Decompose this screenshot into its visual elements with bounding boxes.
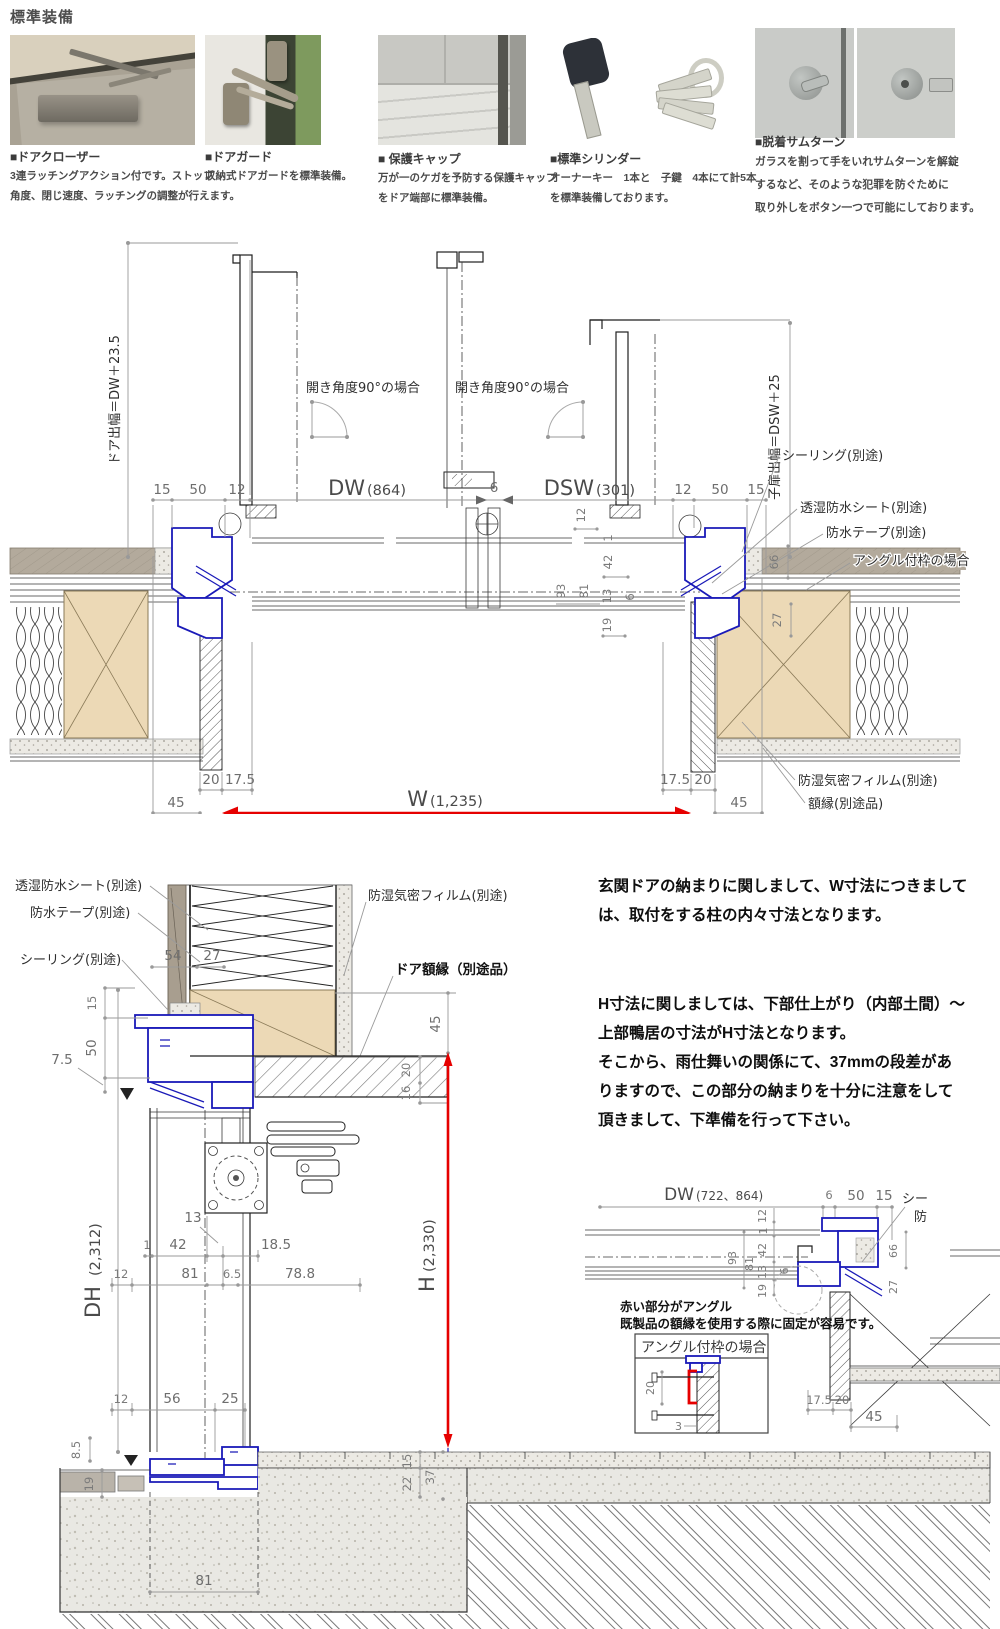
detail-note-1: 赤い部分がアングル (620, 1299, 733, 1314)
h-dimension-note: H寸法に関しましては、下部仕上がり（内部土間）～ 上部鴨居の寸法がH寸法となりま… (598, 990, 978, 1135)
thumbturn-photo-right (857, 28, 955, 138)
dim-175-right: 17.5 (660, 772, 690, 788)
swing-symbol-left (310, 400, 349, 439)
dim-6-5: 6.5 (223, 1267, 241, 1281)
dim-8-5: 8.5 (69, 1441, 83, 1459)
dim-6b: 6 (623, 593, 637, 600)
handle-bar (267, 1122, 345, 1131)
caption-door-closer-l2: 角度、閉じ速度、ラッチングの調整が行えます。 (10, 188, 240, 203)
dim-66: 66 (767, 555, 781, 570)
dim-45-right: 45 (730, 795, 747, 811)
sealing-label: シーリング(別途) (782, 448, 883, 464)
moisture-sheet-label: 透湿防水シート(別途) (15, 878, 142, 894)
dim-20-right: 20 (694, 772, 711, 788)
section-title: 標準装備 (10, 6, 74, 27)
caption-door-guard: ■ドアガード (205, 148, 272, 165)
caption-protection-cap-l2: をドア端部に標準装備。 (378, 190, 494, 205)
box-dim-3: 3 (675, 1420, 682, 1433)
closer-body (38, 95, 138, 122)
dim-6: 6 (490, 480, 499, 496)
dim-12-low: 12 (114, 1392, 129, 1406)
w-value: (1,235) (430, 794, 483, 810)
dim-45-left: 45 (167, 795, 184, 811)
w-dimension-note: 玄関ドアの納まりに関しまして、W寸法につきまして は、取付をする柱の内々寸法とな… (598, 872, 978, 930)
dim-7-5: 7.5 (51, 1052, 72, 1068)
door-catalog-page: 標準装備 (0, 0, 1000, 1629)
caption-cylinder: ■標準シリンダー (550, 150, 641, 167)
note-p1-l2: は、取付をする柱の内々寸法となります。 (598, 901, 978, 930)
dim-12-right: 12 (674, 482, 691, 498)
dim-27: 27 (203, 948, 220, 964)
swing-label-right: 開き角度90°の場合 (455, 380, 569, 396)
protection-cap-photo (378, 35, 526, 145)
thumbturn-photo-left (755, 28, 854, 138)
plan-left-jamb-frame (172, 528, 236, 638)
swing-symbol-right (546, 400, 585, 439)
detail-dim-15: 15 (875, 1188, 892, 1204)
vsec-left-dimensions: 15 50 7.5 DH (2,312) (51, 986, 150, 1454)
vsec-lock-assembly (205, 1118, 359, 1213)
ddim-13: 13 (756, 1265, 769, 1279)
plan-section-drawing: 開き角度90°の場合 開き角度90°の場合 15 50 12 DW (864) … (0, 222, 1000, 814)
detail-note-2: 既製品の額縁を使用する際に固定が容易です。 (620, 1316, 881, 1331)
dim-15-floor: 15 (400, 1454, 414, 1469)
dim-45: 45 (428, 1015, 444, 1032)
dim-12-left: 12 (228, 482, 245, 498)
dim-22: 22 (400, 1477, 414, 1492)
ddim-1: 1 (757, 1228, 770, 1235)
note-p2-l3: そこから、雨仕舞いの関係にて、37mmの段差があ (598, 1048, 978, 1077)
caption-protection-cap: ■ 保護キャップ (378, 150, 461, 167)
child-projection-dim: 子扉出幅＝DSW＋25 (767, 321, 792, 559)
door-closer-photo (10, 35, 195, 145)
plan-open-child-leaf (590, 320, 790, 505)
dim-12: 12 (574, 508, 588, 523)
ddim-12: 12 (756, 1209, 769, 1223)
dim-19: 19 (600, 618, 614, 633)
frame-trim-label: 額縁(別途品) (808, 796, 883, 812)
dh-label: DH (81, 1286, 105, 1318)
detail-dim-6: 6 (825, 1188, 832, 1202)
insulation-batt (852, 607, 912, 735)
hinge-left (219, 513, 241, 535)
dsw-label: DSW (544, 476, 595, 500)
backer-rod (155, 548, 172, 574)
dim-42: 42 (169, 1237, 186, 1253)
detail-dim-50: 50 (847, 1188, 864, 1204)
note-p2-l4: りますので、この部分の納まりを十分に注意をして (598, 1077, 978, 1106)
detail-dw-label: DW (664, 1185, 694, 1205)
truncated-sealing-label: シー (902, 1192, 928, 1207)
dim-15-left: 15 (153, 482, 170, 498)
note-p2-l1: H寸法に関しましては、下部仕上がり（内部土間）～ (598, 990, 978, 1019)
detail-dim-45: 45 (865, 1409, 882, 1425)
angle-frame-case-box: アングル付枠の場合 20 3 (635, 1334, 768, 1433)
sealing-label: シーリング(別途) (20, 952, 121, 968)
ddim-93: 93 (726, 1251, 739, 1265)
dim-19: 19 (82, 1477, 96, 1492)
door-edge (498, 35, 508, 145)
ddim-81: 81 (743, 1257, 756, 1271)
door-guard-photo (205, 35, 321, 145)
dim-25: 25 (221, 1391, 238, 1407)
dim-50-right: 50 (711, 482, 728, 498)
caption-door-closer-l1: 3連ラッチングアクション付です。ストップ (10, 168, 214, 183)
door-jamb-line (841, 28, 846, 138)
caption-cylinder-l2: を標準装備しております。 (550, 190, 674, 205)
waterproof-tape-label: 防水テープ(別途) (30, 905, 130, 921)
detail-post-and-floor (830, 1292, 1000, 1426)
dw-value: (864) (367, 483, 406, 499)
dim-13: 13 (184, 1210, 201, 1226)
moisture-film-label: 防湿気密フィルム(別途) (798, 773, 938, 789)
thumbturn-hole (901, 80, 909, 88)
interior-lintel (255, 1057, 447, 1097)
dim-12-mid: 12 (114, 1267, 129, 1281)
dim-1: 1 (601, 534, 615, 541)
caption-thumbturn: ■脱着サムターン (755, 133, 845, 150)
dim-20-left: 20 (202, 772, 219, 788)
dim-56: 56 (163, 1391, 180, 1407)
cylinder-keys-photo (548, 38, 738, 146)
w-label: W (407, 787, 428, 811)
dim-50-left: 50 (189, 482, 206, 498)
dw-label: DW (328, 476, 365, 500)
dim-54: 54 (164, 948, 181, 964)
h-label: H (415, 1276, 439, 1292)
plan-top-dimensions: 15 50 12 DW (864) 6 DSW (301) 12 50 15 (151, 260, 768, 814)
dim-13: 13 (600, 589, 614, 604)
dim-42: 42 (601, 555, 615, 570)
detail-bottom-dimensions: 17.5 20 45 (806, 1390, 899, 1432)
caption-door-guard-l1: 収納式ドアガードを標準装備。 (205, 168, 352, 183)
owner-key-blade (573, 81, 601, 139)
ddim-19: 19 (756, 1284, 769, 1298)
caption-cylinder-l1: オーナーキー 1本と 子鍵 4本にて計5本 (550, 170, 757, 185)
door-projection-dim: ドア出幅＝DW＋23.5 (108, 241, 238, 559)
guard-bracket (267, 41, 287, 81)
insulation-batt (12, 607, 62, 735)
detail-head-frame (774, 1218, 882, 1314)
waterproof-tape-label: 防水テープ(別途) (826, 525, 926, 541)
detail-dim-20: 20 (835, 1393, 850, 1407)
removed-turn-piece (929, 78, 953, 92)
dim-78-8: 78.8 (285, 1266, 315, 1282)
box-title: アングル付枠の場合 (641, 1340, 766, 1356)
dim-175-left: 17.5 (225, 772, 255, 788)
door-frame-edge (510, 35, 526, 145)
detail-dw-value: (722、864) (696, 1189, 763, 1203)
dim-81: 81 (577, 584, 591, 599)
level-marker (120, 1088, 134, 1100)
angle-frame-case-label: アングル付枠の場合 (853, 554, 969, 569)
hinge-right (679, 515, 701, 537)
caption-thumbturn-l1: ガラスを割って手をいれサムターンを解錠 (755, 153, 959, 169)
tile-joint (444, 35, 446, 83)
dim-1: 1 (143, 1238, 150, 1252)
caption-protection-cap-l1: 万が一のケガを予防する保護キャップ (378, 170, 557, 185)
ddim-42: 42 (756, 1243, 769, 1257)
dim-20: 20 (399, 1063, 413, 1078)
detail-post (830, 1292, 850, 1400)
sill-level-marker (124, 1455, 138, 1466)
note-p2-l2: 上部鴨居の寸法がH寸法となります。 (598, 1019, 978, 1048)
angle-frame-detail-drawing: DW (722、864) 6 50 15 12 1 42 93 (585, 1150, 1000, 1462)
dsw-value: (301) (596, 483, 635, 499)
ddim-27: 27 (887, 1280, 900, 1294)
h-value: (2,330) (422, 1219, 438, 1272)
dim-50: 50 (84, 1039, 100, 1056)
dim-81-mid: 81 (181, 1266, 198, 1282)
dim-18-5: 18.5 (261, 1237, 291, 1253)
truncated-moisture-label: 防 (914, 1209, 927, 1225)
plasterboard (336, 885, 352, 1056)
box-dim-20: 20 (644, 1381, 657, 1395)
swing-label-left: 開き角度90°の場合 (306, 380, 420, 396)
moisture-sheet-label: 透湿防水シート(別途) (800, 500, 927, 516)
dim-15: 15 (85, 996, 99, 1011)
dim-81-foot: 81 (195, 1573, 212, 1589)
sub-keys-bundle (656, 58, 724, 120)
note-p1-l1: 玄関ドアの納まりに関しまして、W寸法につきまして (598, 872, 978, 901)
door-trim-label: ドア額縁（別途品） (395, 961, 517, 978)
door-projection-label: ドア出幅＝DW＋23.5 (108, 335, 123, 465)
dim-37: 37 (423, 1470, 437, 1485)
dim-27: 27 (770, 613, 784, 628)
subsoil-hatch (467, 1505, 990, 1629)
dh-value: (2,312) (88, 1223, 104, 1276)
caption-thumbturn-l3: 取り外しをボタン一つで可能にしております。 (755, 199, 980, 215)
moisture-film-label: 防湿気密フィルム(別途) (368, 888, 508, 904)
dim-16: 16 (399, 1086, 413, 1101)
cylinder-body (297, 1160, 339, 1176)
caption-door-closer: ■ドアクローザー (10, 148, 100, 165)
ddim-6: 6 (778, 1268, 791, 1275)
vsec-middle-dimensions: 13 1 42 18.5 12 81 6.5 78.8 12 56 25 (110, 1210, 362, 1455)
ddim-66: 66 (887, 1244, 900, 1258)
caption-thumbturn-l2: するなど、そのような犯罪を防ぐために (755, 176, 949, 192)
note-p2-l5: 頂きまして、下準備を行って下さい。 (598, 1106, 978, 1135)
foundation (60, 1497, 467, 1612)
plan-open-parent-leaf (233, 252, 483, 508)
dim-15-right: 15 (747, 482, 764, 498)
dim-93: 93 (554, 584, 568, 599)
detail-dim-17-5: 17.5 (806, 1393, 832, 1407)
